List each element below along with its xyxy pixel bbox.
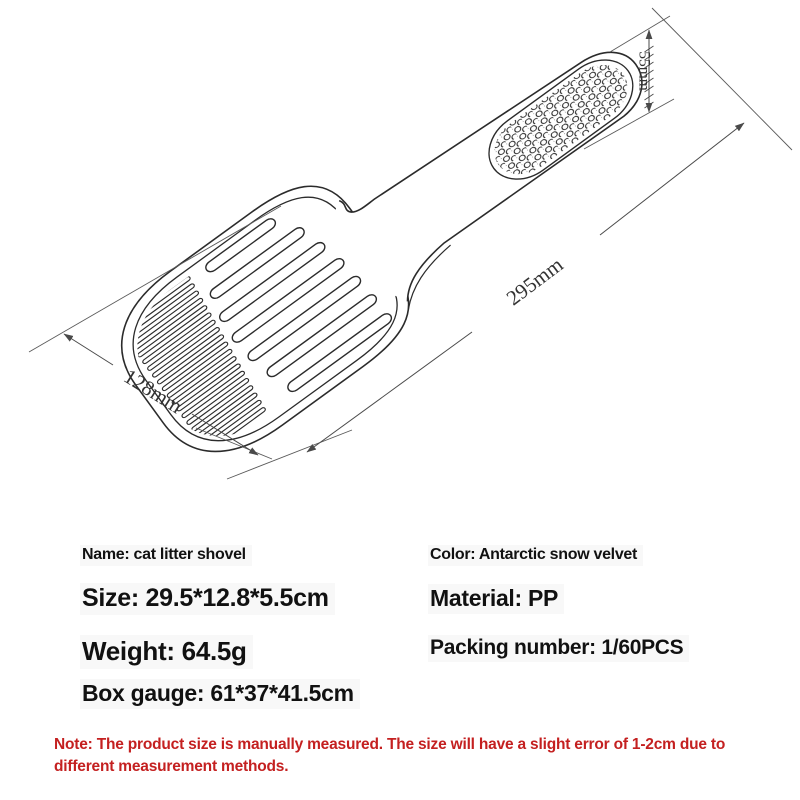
product-spec-sheet: 55mm 295mm 128mm Name: cat litter shovel…	[0, 0, 800, 800]
extension-line-handle-top	[610, 16, 670, 52]
product-note: Note: The product size is manually measu…	[54, 734, 732, 778]
spec-packing-number: Packing number: 1/60PCS	[428, 635, 689, 662]
product-drawing-svg: 55mm 295mm 128mm	[0, 0, 800, 530]
dimension-length-line-a	[600, 123, 744, 235]
product-drawing: 55mm 295mm 128mm	[0, 0, 800, 530]
handle-fill	[323, 13, 670, 311]
spec-color: Color: Antarctic snow velvet	[428, 545, 643, 566]
shovel	[94, 0, 686, 481]
spec-material: Material: PP	[428, 584, 564, 614]
spec-name: Name: cat litter shovel	[80, 545, 252, 566]
extension-line-length-top	[652, 8, 792, 150]
spec-weight: Weight: 64.5g	[80, 635, 253, 669]
dimension-handle-label: 55mm	[635, 51, 652, 91]
spec-size: Size: 29.5*12.8*5.5cm	[80, 583, 335, 615]
dimension-width-line-a	[64, 334, 113, 365]
spec-box-gauge: Box gauge: 61*37*41.5cm	[80, 679, 360, 709]
dimension-length-label: 295mm	[502, 252, 568, 310]
